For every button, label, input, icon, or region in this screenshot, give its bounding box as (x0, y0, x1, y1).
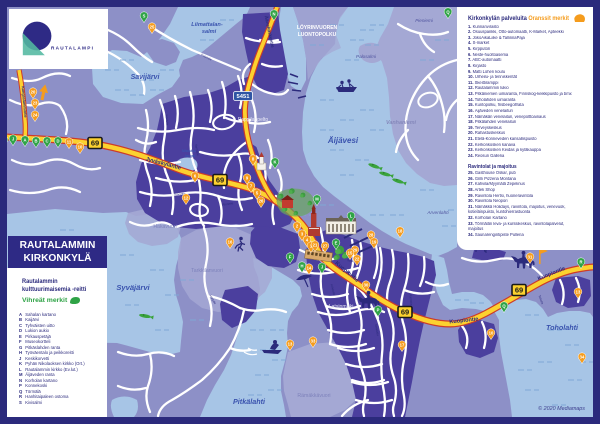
svg-text:10: 10 (489, 331, 494, 336)
svg-text:34: 34 (580, 355, 585, 360)
svg-text:5451: 5451 (237, 94, 251, 100)
svg-text:22: 22 (355, 257, 360, 262)
svg-text:LUONTOPOLKU: LUONTOPOLKU (298, 32, 337, 38)
svg-text:N: N (272, 12, 275, 17)
svg-text:Tarkkilanvuori: Tarkkilanvuori (191, 268, 223, 274)
svg-text:Palosalmi: Palosalmi (356, 54, 377, 59)
svg-text:19: 19 (372, 240, 377, 245)
svg-text:© 2020 Mediamaps: © 2020 Mediamaps (538, 405, 585, 412)
svg-text:Hakavuori: Hakavuori (153, 224, 176, 230)
svg-text:RAUTALAMPI: RAUTALAMPI (51, 46, 94, 51)
svg-text:P: P (377, 308, 380, 313)
svg-text:25: 25 (150, 25, 155, 30)
svg-text:24: 24 (33, 113, 38, 118)
svg-text:13: 13 (288, 342, 293, 347)
svg-text:33: 33 (311, 339, 316, 344)
svg-text:Arvenlahti: Arvenlahti (426, 210, 449, 216)
svg-text:F: F (289, 255, 292, 260)
svg-text:69: 69 (515, 286, 523, 295)
svg-text:14: 14 (307, 266, 312, 271)
svg-text:lampi: lampi (185, 153, 196, 158)
svg-text:Pitkälahti: Pitkälahti (233, 397, 266, 406)
svg-text:B: B (34, 139, 37, 144)
svg-text:C: C (45, 139, 48, 144)
svg-text:69: 69 (401, 308, 409, 317)
svg-text:13: 13 (576, 290, 581, 295)
svg-text:31: 31 (528, 255, 533, 260)
svg-text:Pieniemi: Pieniemi (415, 18, 434, 23)
svg-text:10: 10 (78, 145, 83, 150)
svg-text:A: A (23, 138, 26, 143)
svg-text:20: 20 (31, 90, 36, 95)
svg-text:69: 69 (216, 176, 224, 185)
svg-text:30: 30 (364, 283, 369, 288)
svg-text:27: 27 (323, 244, 328, 249)
svg-text:Äijävesi: Äijävesi (327, 136, 359, 145)
svg-text:23: 23 (33, 101, 38, 106)
svg-text:Savijärvi: Savijärvi (131, 74, 161, 81)
svg-text:69: 69 (91, 139, 99, 148)
svg-text:28: 28 (369, 233, 374, 238)
svg-text:12: 12 (184, 196, 189, 201)
svg-text:D: D (56, 139, 59, 144)
svg-text:Toholahti: Toholahti (546, 323, 579, 332)
svg-text:E: E (335, 241, 338, 246)
svg-text:M: M (315, 197, 319, 202)
svg-text:11: 11 (67, 140, 72, 145)
svg-text:Latsinmäki: Latsinmäki (329, 304, 354, 310)
svg-text:21: 21 (313, 243, 318, 248)
svg-text:16: 16 (228, 240, 233, 245)
svg-text:salmi: salmi (202, 29, 217, 35)
svg-text:H: H (300, 264, 303, 269)
svg-text:LÖYRINVUOREN: LÖYRINVUOREN (297, 24, 338, 31)
svg-text:17: 17 (400, 343, 405, 348)
svg-text:Syväjärvi: Syväjärvi (116, 283, 150, 292)
svg-text:18: 18 (398, 229, 403, 234)
svg-text:R: R (579, 260, 582, 265)
svg-text:Rämäkkävuori: Rämäkkävuori (297, 393, 330, 399)
svg-text:S: S (143, 14, 146, 19)
svg-text:26: 26 (259, 199, 264, 204)
svg-text:L: L (350, 214, 353, 219)
svg-text:K: K (273, 160, 276, 165)
svg-text:Pappilanpelto: Pappilanpelto (238, 117, 269, 123)
svg-text:15: 15 (348, 251, 353, 256)
svg-text:Liimattalan-: Liimattalan- (191, 22, 223, 28)
svg-text:Vanhaniemi: Vanhaniemi (386, 120, 417, 126)
